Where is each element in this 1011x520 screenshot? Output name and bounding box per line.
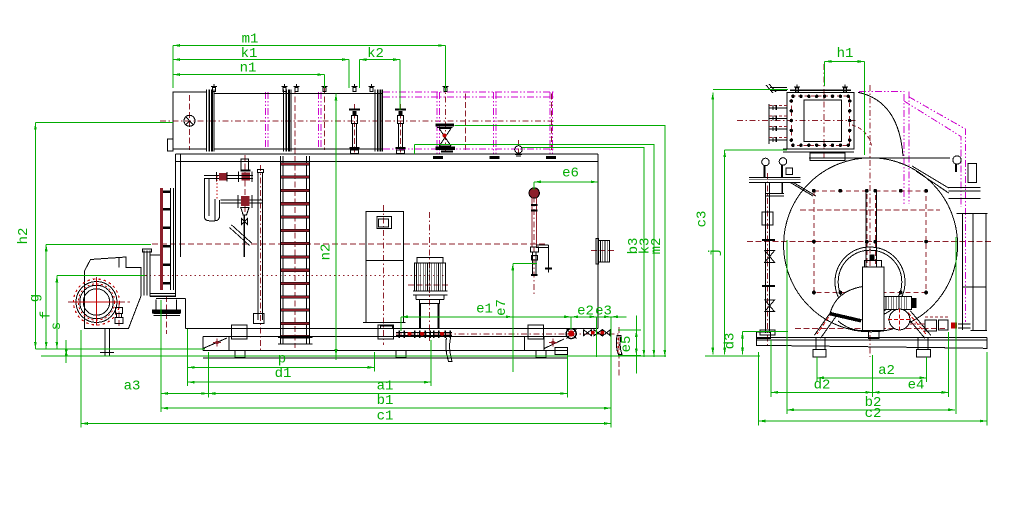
svg-text:e2: e2 [577,304,594,320]
svg-text:p: p [278,351,286,367]
svg-text:n1: n1 [240,61,257,77]
svg-text:m2: m2 [649,238,665,255]
svg-text:a2: a2 [878,363,895,379]
svg-text:c1: c1 [377,409,394,425]
svg-text:b1: b1 [377,393,394,409]
svg-text:c2: c2 [865,406,882,422]
svg-text:s: s [49,322,65,330]
svg-text:d3: d3 [723,333,739,350]
svg-text:n2: n2 [319,244,335,261]
svg-text:f: f [39,311,55,319]
svg-text:h1: h1 [837,46,854,62]
svg-text:e7: e7 [494,299,510,316]
svg-text:h2: h2 [16,228,32,245]
svg-text:e5: e5 [619,336,635,353]
svg-text:k2: k2 [367,46,384,62]
svg-text:e1: e1 [476,302,493,318]
svg-text:d1: d1 [275,366,292,382]
svg-text:e3: e3 [595,304,612,320]
svg-text:d2: d2 [814,377,831,393]
svg-text:e4: e4 [908,377,925,393]
svg-text:c3: c3 [695,211,711,228]
svg-text:e6: e6 [562,166,579,182]
svg-text:a1: a1 [377,379,394,395]
svg-text:g: g [28,294,44,302]
svg-text:j: j [707,248,723,256]
svg-text:a3: a3 [124,379,141,395]
